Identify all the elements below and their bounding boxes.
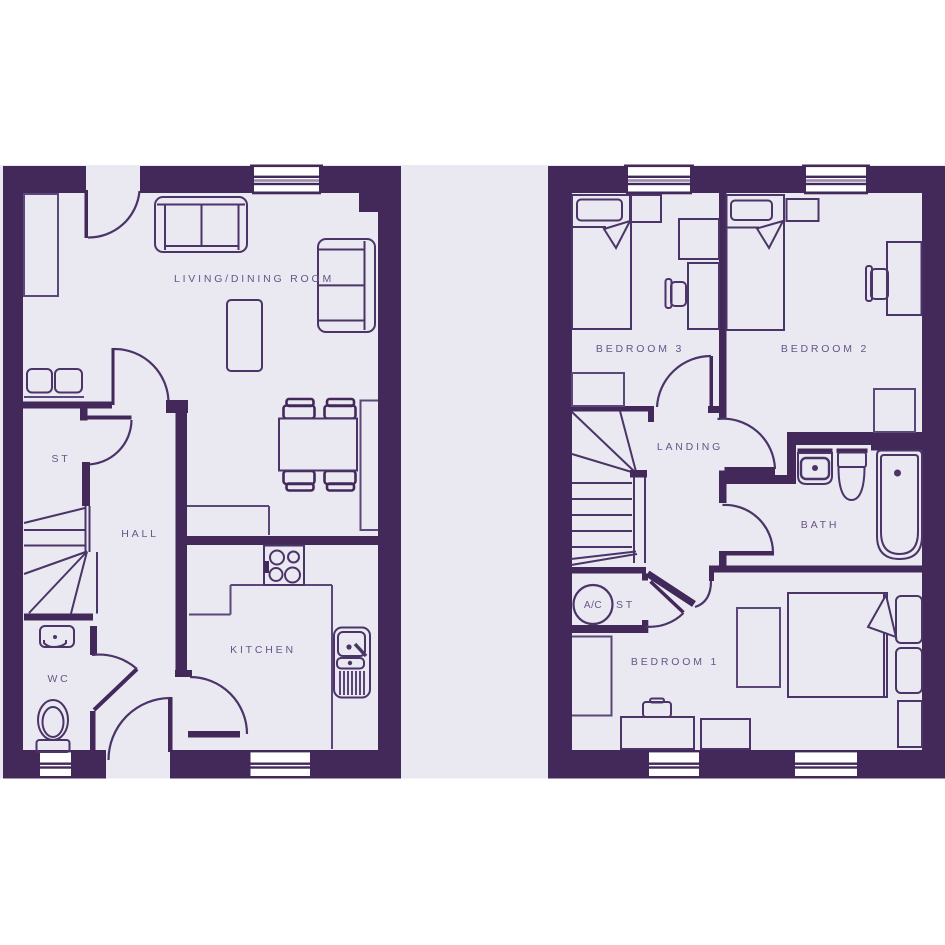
svg-text:KITCHEN: KITCHEN [230, 644, 296, 656]
svg-text:HALL: HALL [121, 528, 158, 540]
svg-text:ST: ST [616, 599, 635, 611]
svg-text:BEDROOM 3: BEDROOM 3 [596, 343, 684, 355]
svg-text:A/C: A/C [584, 600, 602, 611]
svg-text:WC: WC [47, 673, 70, 685]
svg-text:LIVING/DINING ROOM: LIVING/DINING ROOM [174, 273, 334, 285]
svg-text:LANDING: LANDING [657, 441, 723, 453]
svg-text:ST: ST [51, 453, 70, 465]
svg-text:BATH: BATH [801, 519, 839, 531]
svg-text:BEDROOM 2: BEDROOM 2 [781, 343, 869, 355]
svg-text:BEDROOM 1: BEDROOM 1 [631, 656, 719, 668]
